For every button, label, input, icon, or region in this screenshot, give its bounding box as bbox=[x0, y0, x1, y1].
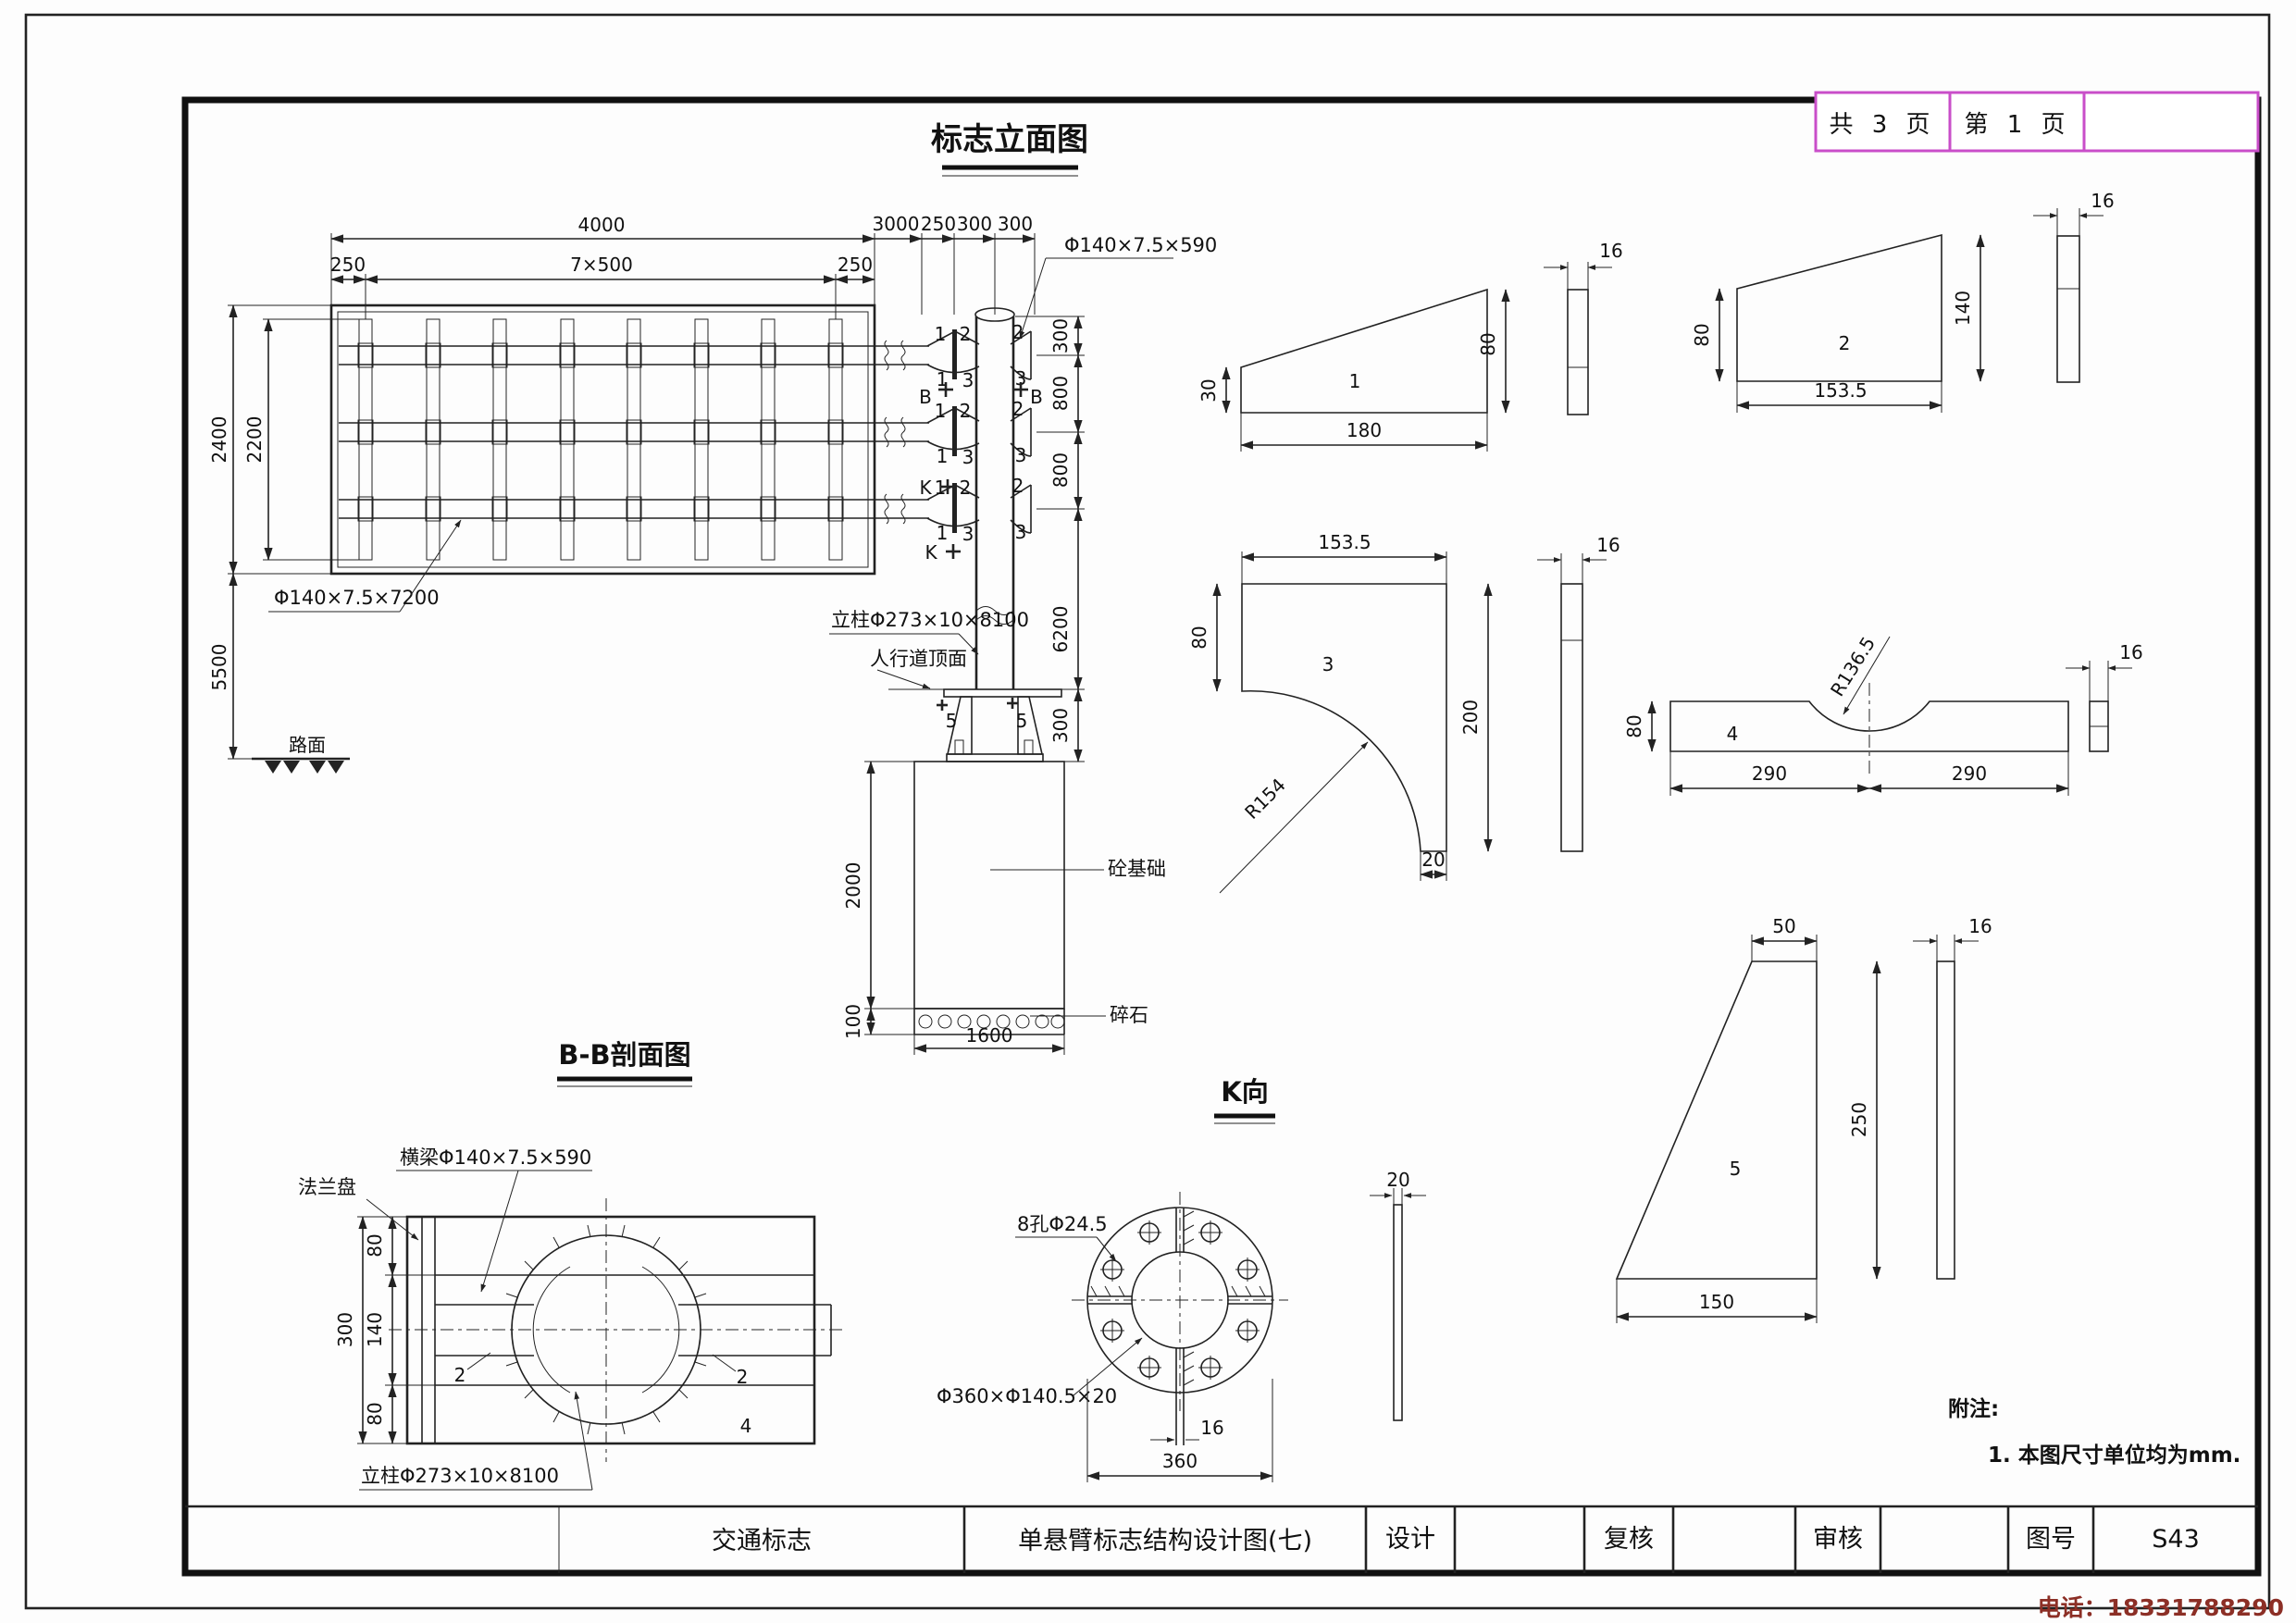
cross-beams bbox=[339, 341, 929, 524]
elevation-title: 标志立面图 bbox=[931, 121, 1088, 176]
titlebar-drawing-title: 单悬臂标志结构设计图(七) bbox=[1018, 1527, 1312, 1555]
page-number-box: 共 3 页 第 1 页 bbox=[1816, 93, 2258, 151]
notes: 附注: 1. 本图尺寸单位均为mm. bbox=[1948, 1396, 2240, 1468]
dim-1600: 1600 bbox=[966, 1024, 1013, 1047]
dim-80: 80 bbox=[1188, 626, 1210, 649]
dim-250: 250 bbox=[330, 254, 366, 276]
gusset-3r: 3 bbox=[1015, 444, 1027, 466]
notes-title: 附注: bbox=[1948, 1396, 1999, 1421]
bracket-junction-1: 1 2 2 1 3 3 bbox=[927, 321, 1031, 391]
dim-2400: 2400 bbox=[208, 416, 230, 464]
dim-16: 16 bbox=[1596, 534, 1620, 556]
label-concrete-foundation: 砼基础 bbox=[1108, 858, 1166, 880]
elevation-title-text: 标志立面图 bbox=[931, 121, 1088, 158]
dim-290: 290 bbox=[1752, 762, 1787, 785]
k-view-title: K向 bbox=[1221, 1076, 1268, 1108]
gusset-2: 2 bbox=[960, 400, 972, 422]
note-item-1: 1. 本图尺寸单位均为mm. bbox=[1988, 1443, 2240, 1468]
gusset-3: 3 bbox=[962, 523, 974, 545]
label-arm-beam: Φ140×7.5×590 bbox=[1064, 234, 1217, 256]
bb-part-2r: 2 bbox=[737, 1366, 749, 1388]
dim-7x500: 7×500 bbox=[570, 254, 633, 276]
dim-30: 30 bbox=[1198, 378, 1220, 402]
section-mark-k: K bbox=[925, 541, 937, 564]
dim-R154: R154 bbox=[1240, 774, 1290, 824]
k-view: K向 8孔Φ24.5 Φ360×Φ140.5×20 16 360 20 bbox=[937, 1076, 1426, 1482]
label-sidewalk-top: 人行道顶面 bbox=[870, 648, 967, 670]
title-bar: 交通标志 单悬臂标志结构设计图(七) 设计 复核 审核 图号 S43 bbox=[185, 1506, 2258, 1573]
dim-200: 200 bbox=[1459, 700, 1482, 735]
cad-drawing: 共 3 页 第 1 页 交通标志 单悬臂标志结构设计图(七) 设计 复核 审核 … bbox=[0, 0, 2296, 1623]
gusset-2r: 2 bbox=[1012, 398, 1024, 420]
dim-180: 180 bbox=[1347, 419, 1382, 441]
bb-part-4: 4 bbox=[740, 1415, 752, 1437]
dim-150: 150 bbox=[1699, 1291, 1734, 1313]
part-2-label: 2 bbox=[1839, 332, 1851, 354]
dim-140: 140 bbox=[1952, 291, 1974, 326]
dim-5500: 5500 bbox=[208, 644, 230, 691]
detail-1: 1 180 30 80 16 bbox=[1198, 240, 1623, 452]
elevation-labels: Φ140×7.5×590 Φ140×7.5×7200 立柱Φ273×10×810… bbox=[252, 234, 1217, 1026]
dim-800: 800 bbox=[1049, 376, 1072, 411]
label-cross-beam: 横梁Φ140×7.5×590 bbox=[400, 1146, 591, 1169]
dim-250: 250 bbox=[921, 213, 956, 235]
section-mark-b: B bbox=[1030, 386, 1043, 408]
dim-16: 16 bbox=[1968, 915, 1992, 937]
gusset-1b: 1 bbox=[937, 445, 949, 467]
bracket-junction-2: 1 2 2 1 3 3 bbox=[927, 398, 1031, 468]
dim-80: 80 bbox=[364, 1233, 386, 1257]
dim-20: 20 bbox=[1421, 849, 1445, 871]
label-bolt-holes: 8孔Φ24.5 bbox=[1017, 1213, 1108, 1235]
dim-300: 300 bbox=[957, 213, 992, 235]
dim-300: 300 bbox=[998, 213, 1033, 235]
drawing-sheet: 共 3 页 第 1 页 交通标志 单悬臂标志结构设计图(七) 设计 复核 审核 … bbox=[0, 0, 2296, 1623]
gusset-2: 2 bbox=[960, 477, 972, 499]
gusset-1: 1 bbox=[935, 323, 947, 345]
dim-80: 80 bbox=[1691, 323, 1713, 346]
dim-3000: 3000 bbox=[873, 213, 920, 235]
gusset-1: 1 bbox=[935, 400, 947, 422]
dim-16: 16 bbox=[1200, 1417, 1223, 1439]
pages-total: 共 3 页 bbox=[1829, 111, 1935, 139]
base-and-foundation: 5 5 bbox=[888, 689, 1064, 1035]
phone-number: 电话：18331788290 bbox=[2038, 1594, 2284, 1621]
titlebar-recheck: 复核 bbox=[1604, 1525, 1654, 1554]
dim-16: 16 bbox=[2091, 190, 2114, 212]
dim-2000: 2000 bbox=[842, 862, 864, 910]
bb-section-title: B-B剖面图 bbox=[558, 1039, 690, 1071]
gusset-3: 3 bbox=[962, 446, 974, 468]
section-mark-k: K bbox=[919, 477, 932, 499]
titlebar-figno-label: 图号 bbox=[2026, 1525, 2076, 1554]
section-mark-b: B bbox=[919, 386, 932, 408]
dim-6200: 6200 bbox=[1049, 606, 1072, 653]
dim-250: 250 bbox=[1848, 1102, 1870, 1137]
detail-3: 3 153.5 80 R154 20 200 16 bbox=[1188, 531, 1620, 893]
titlebar-design: 设计 bbox=[1385, 1525, 1435, 1554]
label-road-surface: 路面 bbox=[289, 734, 326, 756]
dim-80: 80 bbox=[1623, 714, 1645, 737]
dim-2200: 2200 bbox=[243, 416, 266, 464]
bracket-junction-3: 1 2 2 1 3 3 bbox=[927, 475, 1031, 545]
gusset-5: 5 bbox=[946, 710, 958, 732]
part-4-label: 4 bbox=[1727, 723, 1739, 745]
dim-800: 800 bbox=[1049, 452, 1072, 488]
dim-50: 50 bbox=[1772, 915, 1795, 937]
dim-4000: 4000 bbox=[578, 214, 626, 236]
part-1-label: 1 bbox=[1349, 370, 1361, 392]
gusset-3r: 3 bbox=[1015, 521, 1027, 543]
gusset-5: 5 bbox=[1016, 710, 1028, 732]
dim-140: 140 bbox=[364, 1312, 386, 1347]
dim-80: 80 bbox=[1477, 332, 1499, 355]
titlebar-category: 交通标志 bbox=[712, 1527, 812, 1555]
detail-4: 4 R136.5 290 290 80 16 bbox=[1623, 633, 2143, 796]
bb-part-2: 2 bbox=[454, 1364, 466, 1386]
bb-section: B-B剖面图 横梁Φ140×7.5×590 法兰盘 2 2 4 立柱Φ273×1… bbox=[298, 1039, 842, 1490]
dim-250: 250 bbox=[838, 254, 873, 276]
label-flange-plate: 法兰盘 bbox=[298, 1176, 356, 1198]
titlebar-figno-value: S43 bbox=[2152, 1525, 2200, 1554]
gusset-2r: 2 bbox=[1012, 475, 1024, 497]
dim-20: 20 bbox=[1386, 1169, 1409, 1191]
dim-300: 300 bbox=[1049, 318, 1072, 353]
page-current: 第 1 页 bbox=[1964, 111, 2070, 139]
dim-153.5: 153.5 bbox=[1814, 379, 1867, 402]
label-gravel: 碎石 bbox=[1110, 1004, 1148, 1026]
column-pole bbox=[975, 308, 1014, 689]
dim-290: 290 bbox=[1952, 762, 1987, 785]
bb-label-column: 立柱Φ273×10×8100 bbox=[361, 1465, 559, 1487]
titlebar-review: 审核 bbox=[1813, 1525, 1863, 1554]
dim-80: 80 bbox=[364, 1402, 386, 1425]
gusset-3: 3 bbox=[962, 369, 974, 391]
dim-16: 16 bbox=[2119, 641, 2142, 663]
dim-300: 300 bbox=[1049, 708, 1072, 743]
dim-360: 360 bbox=[1162, 1450, 1198, 1472]
dim-16: 16 bbox=[1599, 240, 1622, 262]
part-5-label: 5 bbox=[1730, 1158, 1742, 1180]
gusset-1b: 1 bbox=[937, 522, 949, 544]
detail-5: 5 50 150 250 16 bbox=[1617, 915, 1992, 1323]
dim-300: 300 bbox=[334, 1312, 356, 1347]
label-flange-ring: Φ360×Φ140.5×20 bbox=[937, 1385, 1117, 1407]
gusset-2: 2 bbox=[960, 323, 972, 345]
detail-2: 2 153.5 80 140 16 bbox=[1691, 190, 2115, 413]
part-3-label: 3 bbox=[1322, 653, 1334, 675]
dim-100: 100 bbox=[842, 1004, 864, 1039]
label-column: 立柱Φ273×10×8100 bbox=[831, 609, 1029, 631]
beam-post-connectors bbox=[358, 343, 843, 521]
dim-153.5: 153.5 bbox=[1318, 531, 1371, 553]
